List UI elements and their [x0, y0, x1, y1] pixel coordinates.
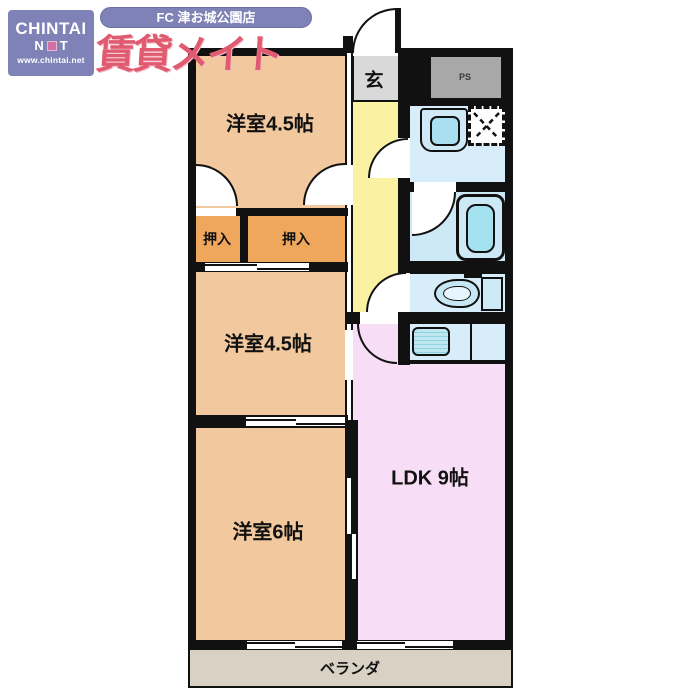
label-entrance: 玄 [364, 66, 383, 93]
chintai-net-n: N [34, 39, 43, 52]
toilet-bowl-inner [443, 286, 471, 301]
sliding-line [257, 268, 309, 270]
sliding-line [247, 642, 295, 644]
label-ldk: LDK 9帖 [391, 462, 469, 491]
washing-machine-icon [468, 106, 505, 146]
wall-right [505, 48, 513, 650]
wall-washroom-bath-b [456, 182, 505, 192]
wall-rooms-hall-a [345, 53, 353, 165]
cube-icon [47, 41, 57, 51]
toilet-paper-holder [464, 272, 482, 278]
wall-hall-washroom-a [398, 100, 410, 138]
toilet-tank [481, 277, 503, 311]
sliding-line [296, 423, 345, 425]
washbasin-icon [420, 108, 468, 152]
label-veranda: ベランダ [320, 658, 380, 679]
wall-toilet-counter [398, 312, 505, 324]
brand-name: 賃貸メイト [94, 22, 283, 80]
sliding-line [205, 264, 257, 266]
wall-left [188, 48, 196, 650]
chintai-logo-text: CHINTAI [8, 19, 94, 39]
wall-closet-top-a [192, 208, 196, 216]
wall-rooms-hall-c [345, 380, 353, 420]
floorplan-image: CHINTAI N T www.chintai.net FC 津お城公園店 賃貸… [0, 0, 700, 700]
label-pipe-space: PS [459, 72, 471, 82]
wall-closet-top-b [236, 208, 348, 216]
entrance-door-arc [352, 8, 397, 53]
toilet-icon [434, 279, 480, 308]
label-bedroom-middle: 洋室4.5帖 [224, 328, 312, 357]
wall-washroom-bath-a [408, 182, 414, 192]
bathtub-inner [466, 204, 495, 253]
counter-divider [470, 324, 472, 360]
chintai-url: www.chintai.net [8, 55, 94, 65]
sliding-door-panel [352, 534, 356, 579]
sliding-line [295, 646, 342, 648]
wall-washroom-top [398, 98, 505, 106]
wall-hall-bath [398, 178, 410, 273]
chintai-logo: CHINTAI N T www.chintai.net [8, 10, 94, 76]
sliding-line [405, 646, 453, 648]
wall-entrance-ps [398, 53, 427, 104]
sliding-door-panel [347, 478, 351, 534]
sliding-line [246, 419, 296, 421]
entrance-door-leaf [395, 8, 401, 53]
kitchen-sink-icon [412, 327, 450, 356]
wall-hall-ldk-a [345, 312, 360, 324]
chintai-net-t: T [60, 39, 68, 52]
wall-closet-divider [240, 216, 248, 262]
bathtub-icon [456, 194, 505, 261]
label-closet-right: 押入 [282, 229, 310, 249]
wall-bath-toilet [410, 261, 505, 274]
washing-machine-x [471, 109, 502, 143]
chintai-net-row: N T [8, 39, 94, 52]
label-closet-left: 押入 [203, 229, 231, 249]
label-bedroom-bottom: 洋室6帖 [232, 516, 303, 545]
counter-edge [398, 360, 505, 364]
sliding-line [357, 642, 405, 644]
washbasin-bowl [430, 116, 460, 146]
label-bedroom-top: 洋室4.5帖 [226, 108, 314, 137]
